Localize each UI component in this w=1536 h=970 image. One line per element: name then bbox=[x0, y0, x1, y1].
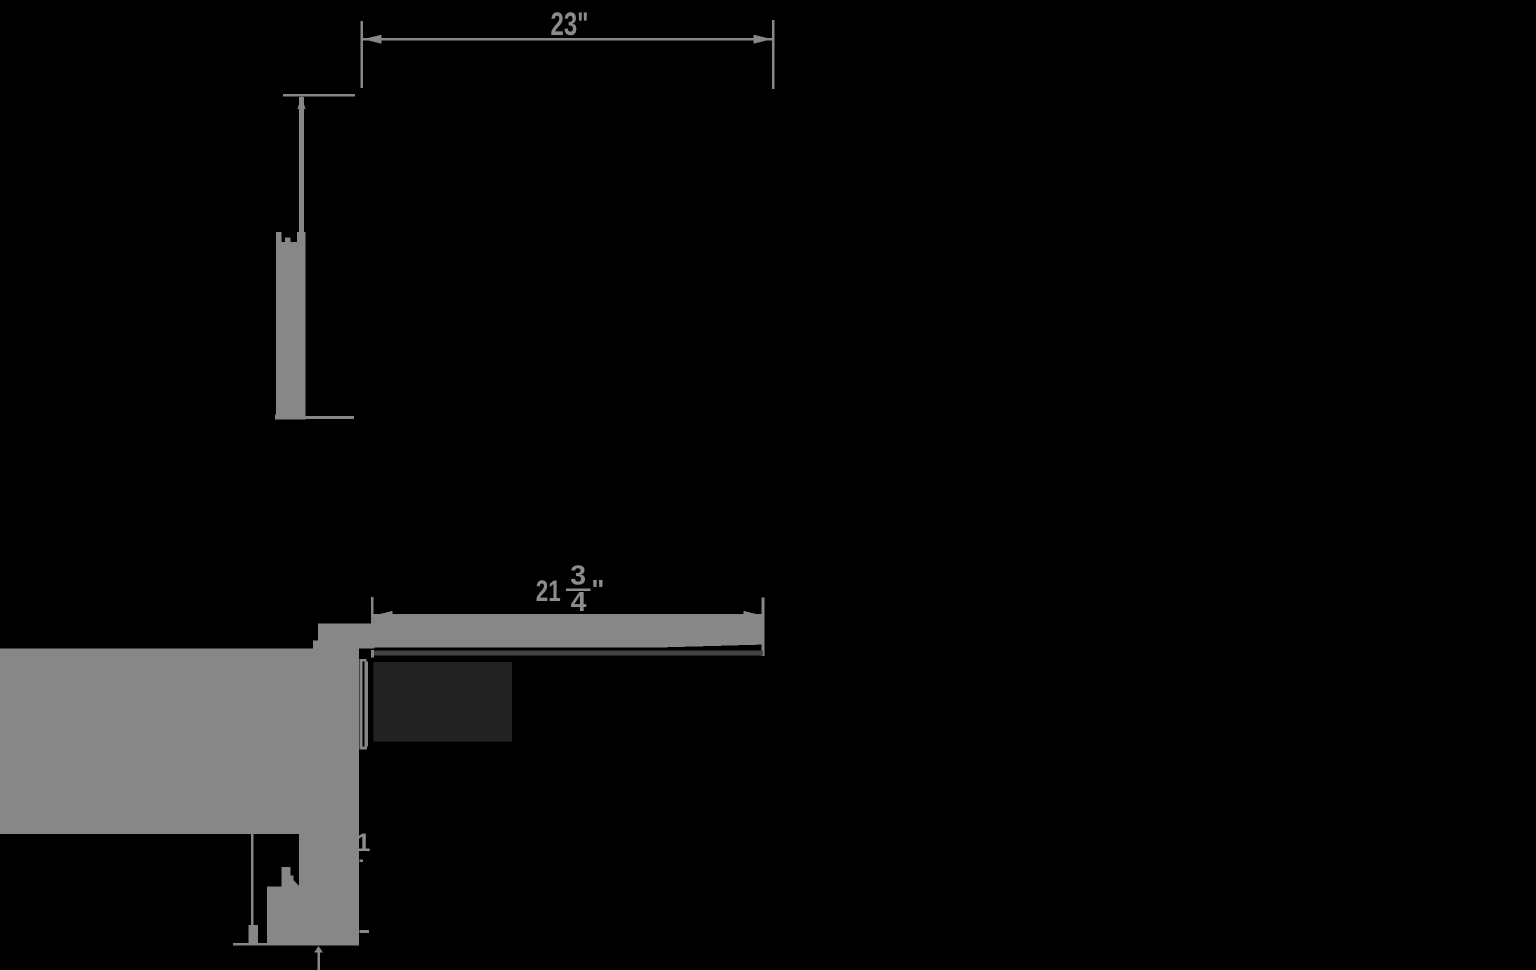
svg-text:1: 1 bbox=[357, 829, 371, 857]
svg-text:23": 23" bbox=[551, 6, 589, 42]
svg-text:21: 21 bbox=[536, 575, 561, 608]
svg-text:4: 4 bbox=[571, 586, 587, 617]
svg-text:": " bbox=[591, 574, 604, 605]
